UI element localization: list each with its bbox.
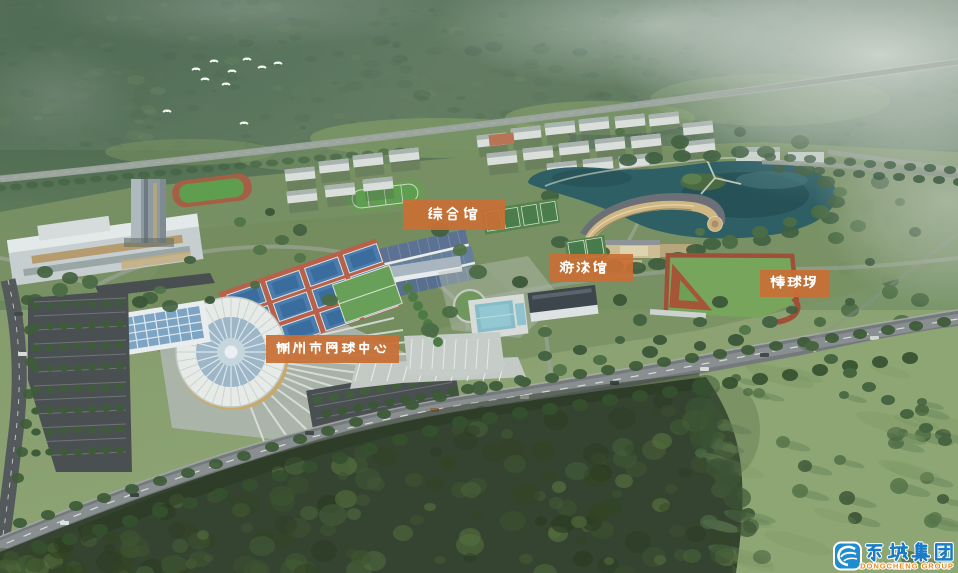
svg-text:DONGCHENG GROUP: DONGCHENG GROUP	[860, 562, 954, 571]
